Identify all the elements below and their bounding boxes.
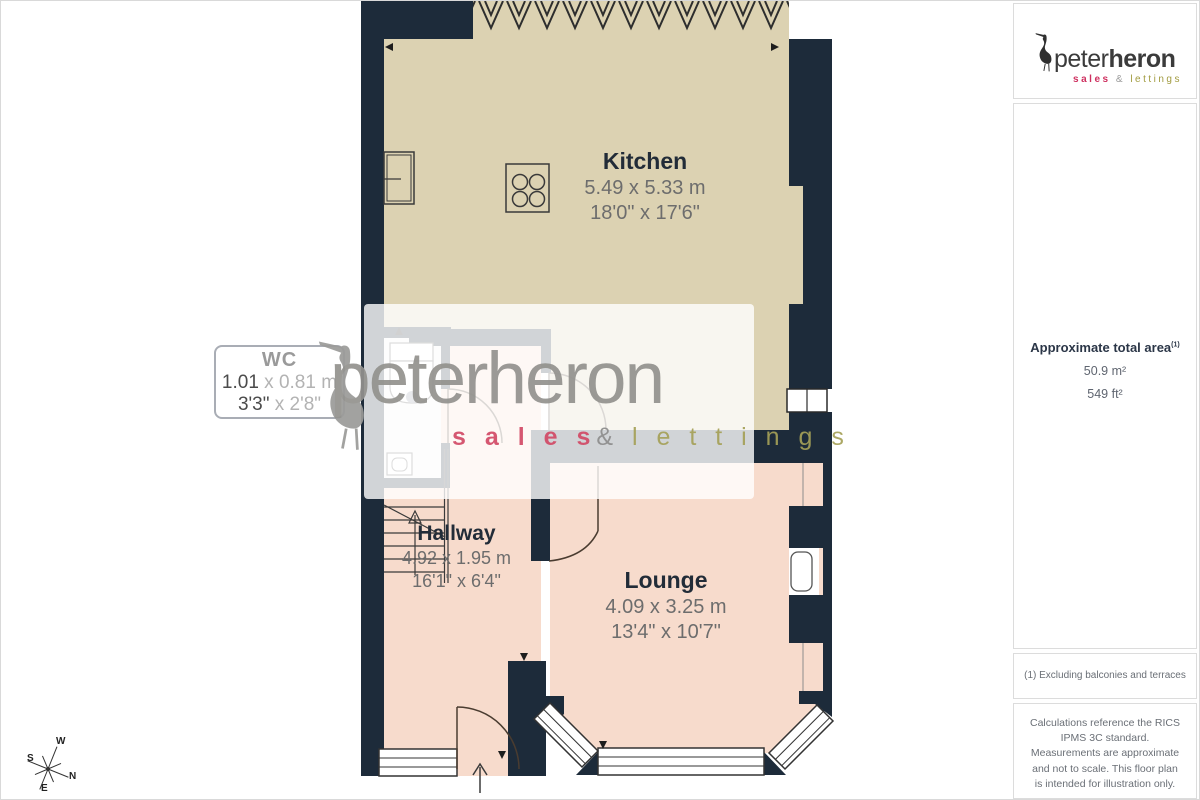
sidebar-disclaimer-panel: Calculations reference the RICS IPMS 3C …	[1013, 703, 1197, 799]
brand-lettings: lettings	[1130, 74, 1182, 85]
watermark-band	[364, 304, 754, 499]
compass-rose-icon	[19, 739, 77, 798]
wc-metric-a: 1.01	[222, 372, 259, 393]
brand-sales: sales	[1073, 74, 1111, 85]
compass-east-label: E	[41, 783, 48, 794]
compass-north-label: N	[69, 771, 76, 782]
brand-heron: heron	[1108, 45, 1175, 73]
compass-west-label: W	[56, 736, 65, 747]
heron-icon	[1032, 32, 1054, 72]
floor-plan: W S N E Kitchen 5.49 x 5.33 m 18'0" x 17…	[1, 1, 1011, 800]
total-area-sqm: 50.9 m²	[1014, 364, 1196, 378]
brand-logo: peterheron sales & lettings	[1032, 32, 1182, 85]
wc-callout: WC 1.01 x 0.81 m 3'3" x 2'8"	[214, 345, 345, 419]
total-area-superscript: (1)	[1171, 342, 1180, 349]
lounge-floor	[550, 463, 823, 703]
brand-subtitle: sales & lettings	[1032, 74, 1182, 85]
sidebar-logo-panel: peterheron sales & lettings	[1013, 3, 1197, 99]
wc-name: WC	[216, 349, 343, 372]
wc-dim-imperial: 3'3" x 2'8"	[216, 394, 343, 416]
zigzag-pattern	[473, 1, 789, 39]
exclusion-note: (1) Excluding balconies and terraces	[1014, 654, 1196, 697]
brand-amp: &	[1116, 74, 1125, 85]
compass-south-label: S	[27, 753, 34, 764]
total-area-title-text: Approximate total area	[1030, 340, 1171, 355]
total-area-sqft: 549 ft²	[1014, 387, 1196, 401]
wc-dim-metric: 1.01 x 0.81 m	[216, 372, 343, 394]
wc-metric-b: x 0.81 m	[259, 372, 337, 393]
wc-imperial-a: 3'3"	[238, 394, 270, 415]
fireplace-recess	[789, 548, 819, 595]
total-area-title: Approximate total area(1)	[1014, 340, 1196, 355]
total-area-block: Approximate total area(1) 50.9 m² 549 ft…	[1014, 340, 1196, 401]
brand-peter: peter	[1054, 45, 1108, 73]
sidebar-area-panel: Approximate total area(1) 50.9 m² 549 ft…	[1013, 103, 1197, 649]
disclaimer-text: Calculations reference the RICS IPMS 3C …	[1014, 704, 1196, 792]
sidebar-note-panel: (1) Excluding balconies and terraces	[1013, 653, 1197, 699]
floorplan-page: W S N E Kitchen 5.49 x 5.33 m 18'0" x 17…	[0, 0, 1200, 800]
wc-imperial-b: x 2'8"	[269, 394, 321, 415]
brand-name: peterheron	[1054, 47, 1175, 72]
